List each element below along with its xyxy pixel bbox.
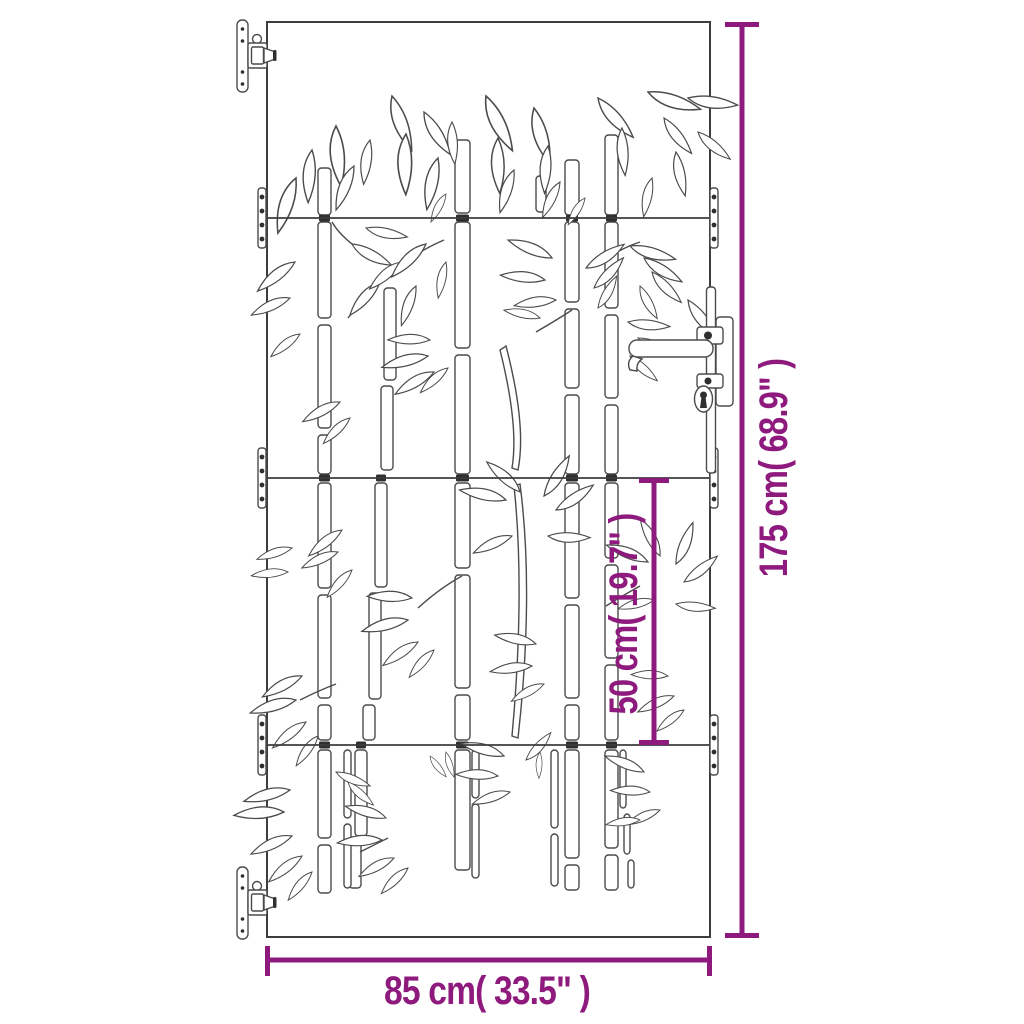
width-dimension-label: 85 cm( 33.5" ) [384, 971, 590, 1011]
keyhole-icon [695, 386, 713, 412]
height-dimension-label: 175 cm( 68.9" ) [754, 359, 794, 577]
gate-line-art [0, 0, 1024, 1024]
product-dimension-diagram: 175 cm( 68.9" ) 50 cm( 19.7" ) 85 cm( 33… [0, 0, 1024, 1024]
inner-height-dimension-label: 50 cm( 19.7" ) [604, 514, 644, 715]
